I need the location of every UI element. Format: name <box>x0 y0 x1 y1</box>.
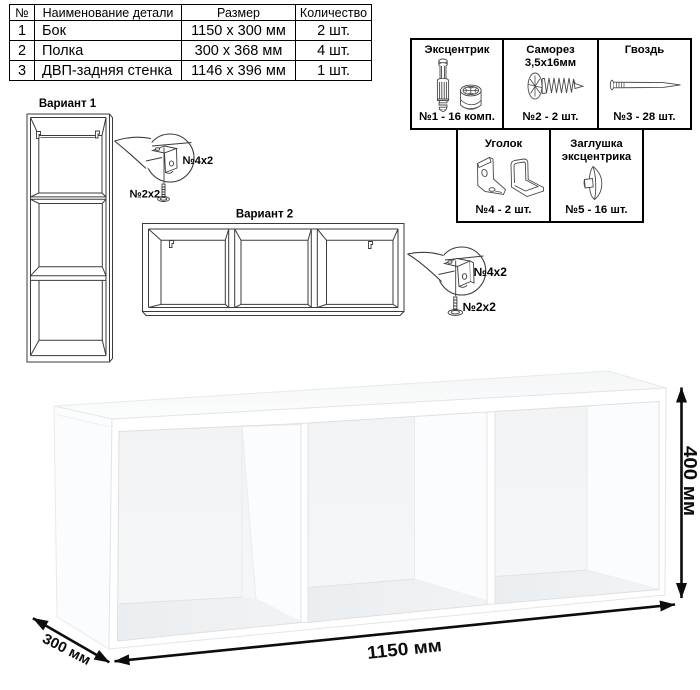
svg-text:Вариант 2: Вариант 2 <box>236 209 293 221</box>
svg-text:Вариант 1: Вариант 1 <box>39 98 97 110</box>
svg-text:1150 мм: 1150 мм <box>366 635 443 663</box>
svg-text:№4х2: №4х2 <box>183 155 214 167</box>
svg-text:400 мм: 400 мм <box>680 446 700 516</box>
svg-text:№2х2: №2х2 <box>130 189 161 201</box>
svg-text:№2х2: №2х2 <box>463 300 497 314</box>
svg-text:№4х2: №4х2 <box>474 265 508 279</box>
